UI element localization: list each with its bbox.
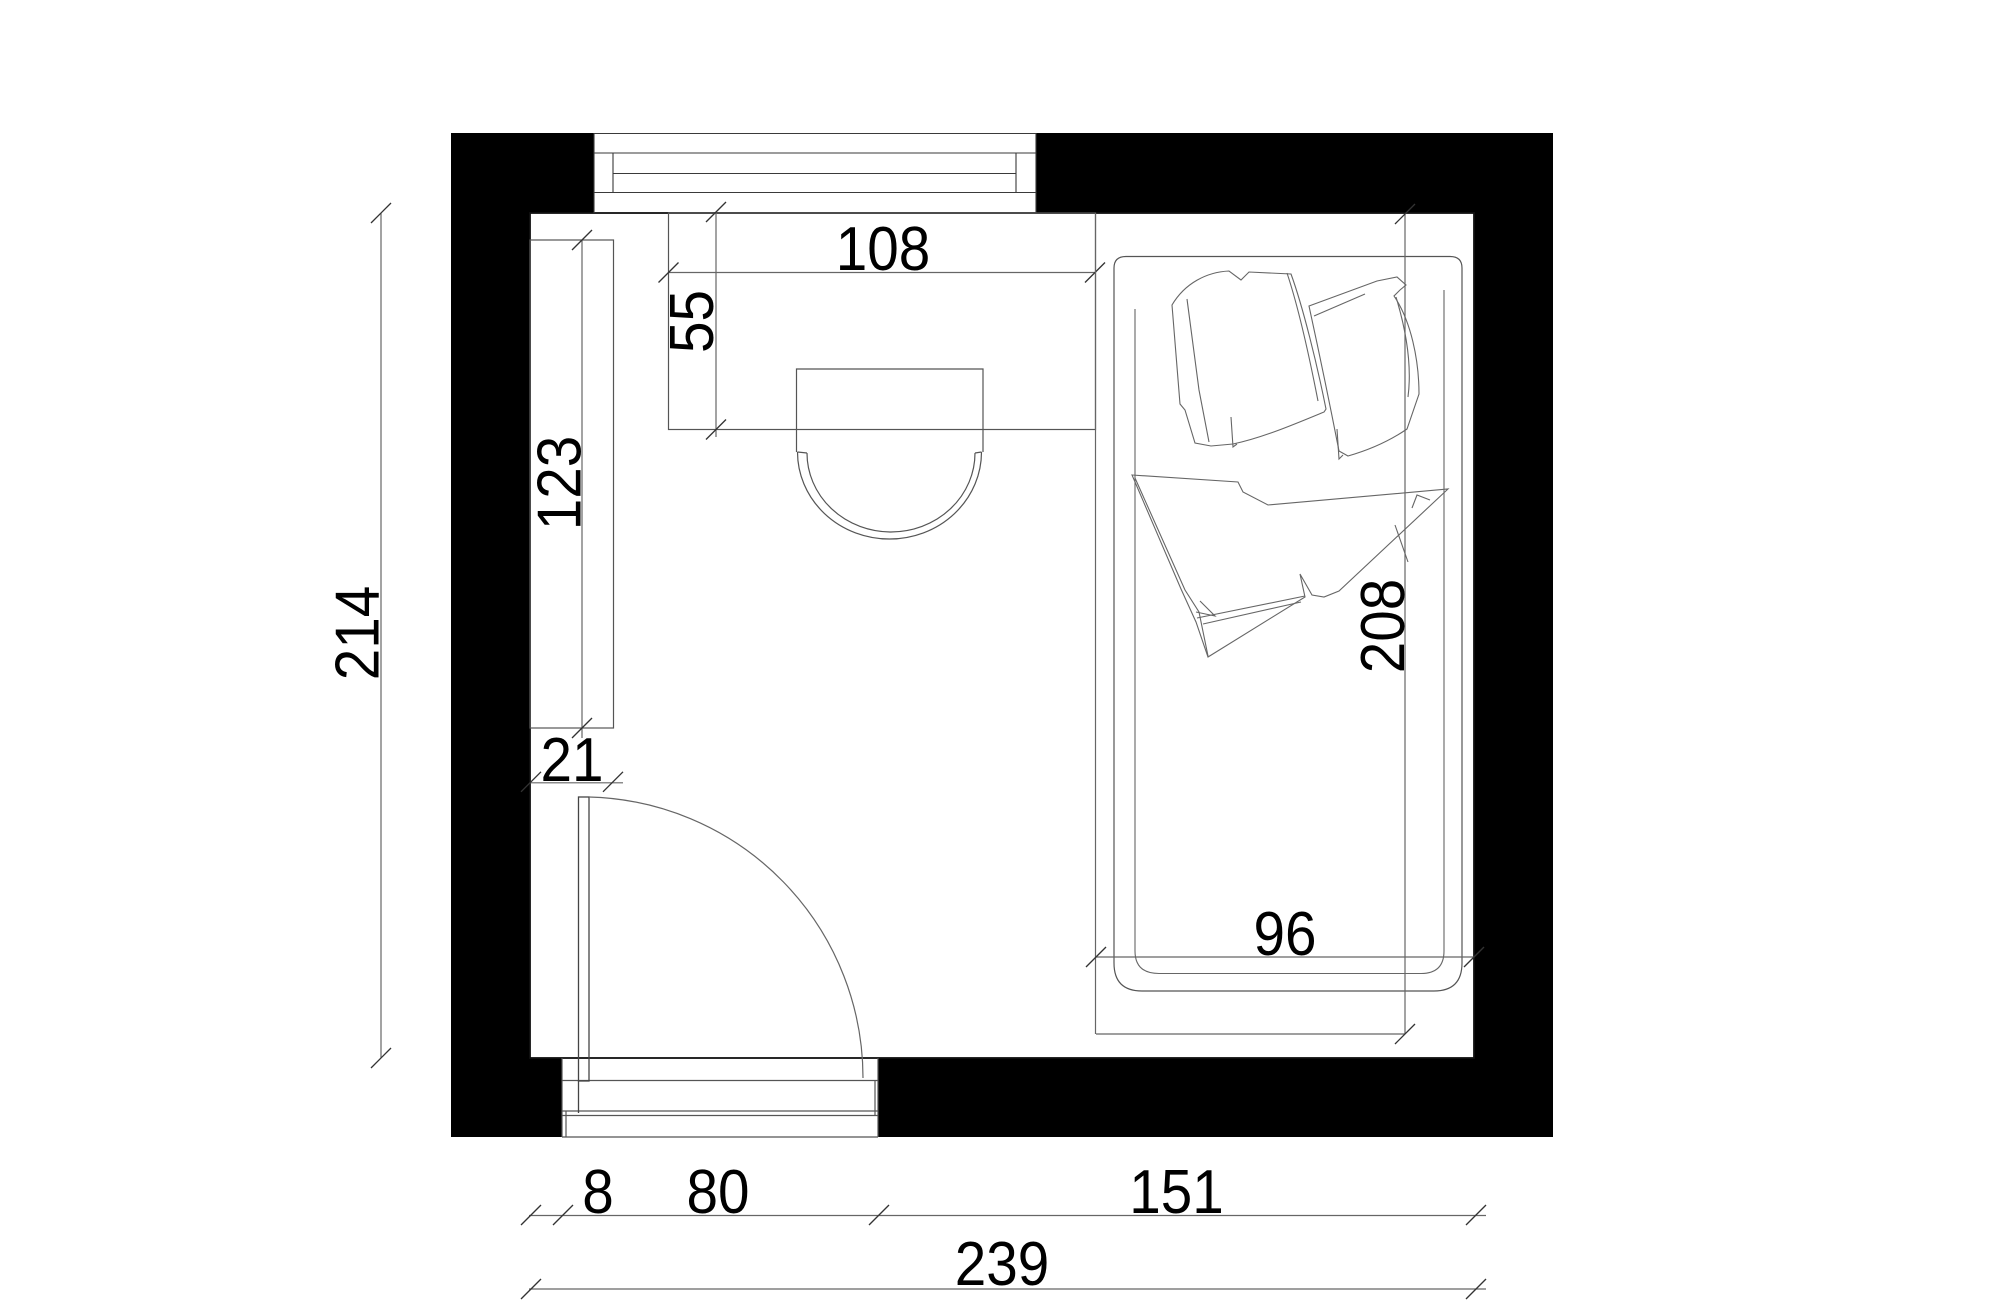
svg-text:123: 123 (526, 436, 595, 531)
svg-text:96: 96 (1254, 900, 1317, 969)
svg-text:208: 208 (1349, 579, 1418, 674)
svg-text:80: 80 (687, 1158, 750, 1227)
svg-text:21: 21 (541, 726, 604, 795)
svg-text:214: 214 (324, 586, 393, 681)
svg-text:8: 8 (582, 1158, 614, 1227)
svg-text:108: 108 (836, 215, 931, 284)
svg-text:151: 151 (1129, 1158, 1224, 1227)
svg-text:55: 55 (658, 290, 727, 353)
svg-text:239: 239 (955, 1230, 1050, 1299)
